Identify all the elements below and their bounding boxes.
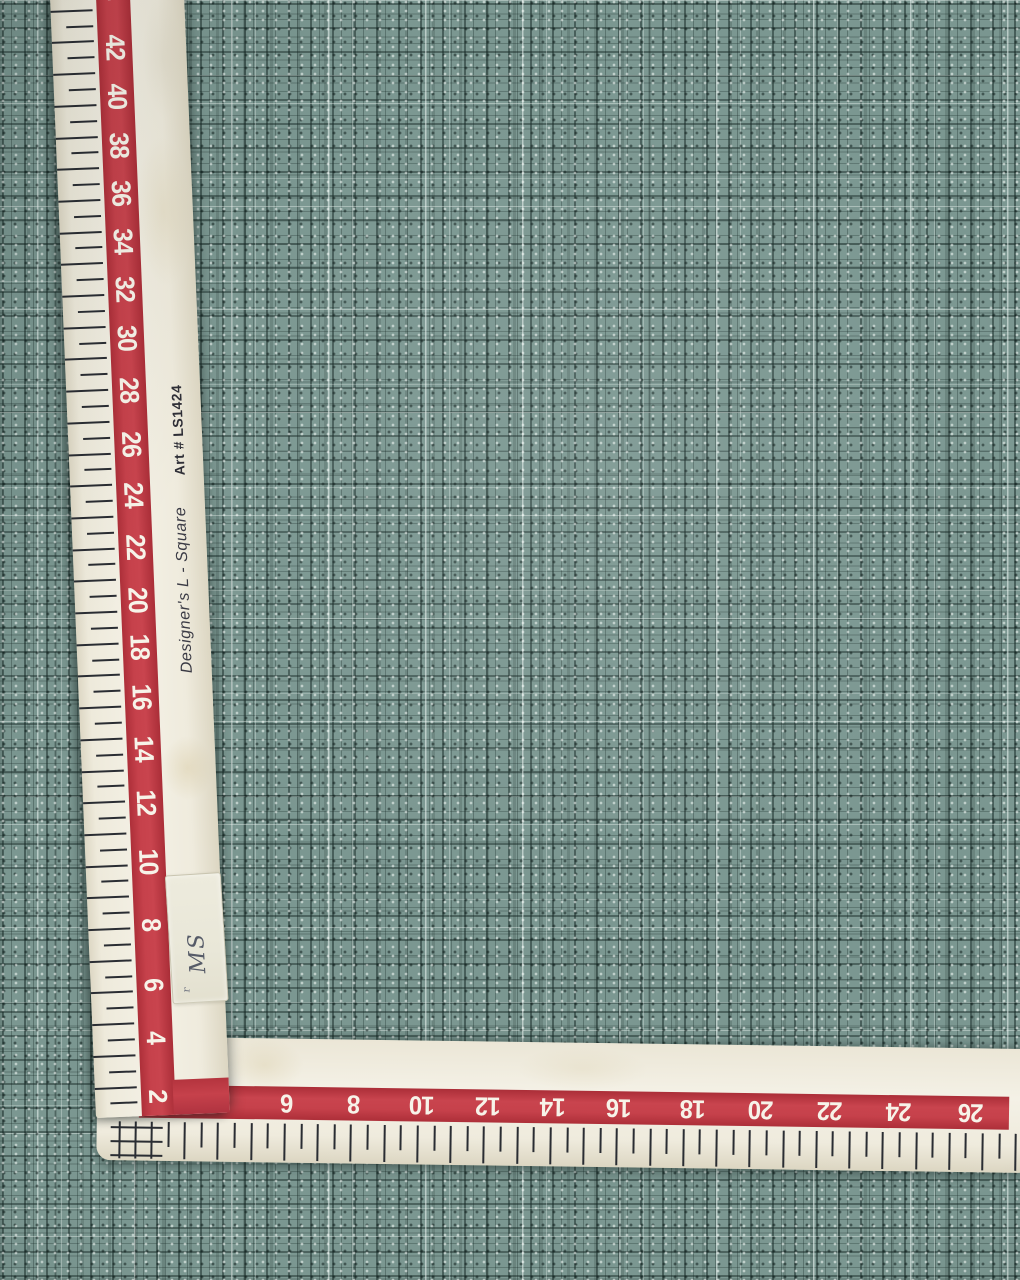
tick-mark: [84, 468, 111, 471]
tick-mark: [78, 310, 105, 313]
tick-mark: [366, 1125, 368, 1150]
tick-mark: [848, 1131, 851, 1168]
tick-mark: [566, 1128, 568, 1153]
tick-mark: [109, 1070, 136, 1073]
tick-mark: [100, 848, 127, 851]
tick-mark: [99, 817, 126, 820]
scale-number: 40: [102, 80, 131, 112]
tick-mark: [749, 1130, 752, 1167]
stain-mark: [160, 735, 215, 801]
tick-mark: [77, 642, 119, 646]
tick-mark: [666, 1129, 668, 1154]
tick-mark: [70, 484, 112, 488]
tick-mark: [316, 1124, 319, 1161]
corner-scale-number: 2: [143, 1079, 172, 1114]
tick-mark: [283, 1124, 286, 1161]
tick-mark: [75, 611, 117, 615]
tick-mark: [83, 801, 125, 805]
tick-mark: [782, 1131, 785, 1168]
art-number-text: Art # LS1424: [168, 384, 188, 475]
scale-number: 16: [127, 681, 156, 713]
tick-mark: [97, 785, 124, 788]
tick-mark: [60, 231, 102, 235]
tick-mark: [65, 357, 107, 361]
stain-mark: [225, 1038, 304, 1093]
tick-mark: [66, 389, 108, 393]
scale-number: 26: [117, 428, 146, 460]
tick-mark: [80, 373, 107, 376]
tick-mark: [449, 1126, 452, 1163]
tick-mark: [948, 1133, 951, 1170]
tick-mark: [87, 532, 114, 535]
tick-mark: [71, 516, 113, 520]
tick-mark: [383, 1125, 386, 1162]
tick-mark: [66, 25, 93, 28]
scale-number: 28: [115, 374, 144, 406]
tick-mark: [79, 341, 106, 344]
tick-mark: [998, 1134, 1000, 1159]
tick-mark: [965, 1133, 967, 1158]
scale-number: 12: [131, 786, 160, 818]
tick-mark: [416, 1125, 419, 1162]
scale-number: 10: [403, 1088, 440, 1122]
tick-mark: [52, 41, 94, 45]
tick-mark: [167, 1122, 169, 1147]
tick-mark: [67, 56, 94, 59]
corner-grid-line: [118, 1121, 121, 1158]
scale-number: 20: [123, 584, 152, 616]
tick-mark: [106, 1007, 133, 1010]
tick-mark: [88, 927, 130, 931]
tick-mark: [78, 674, 120, 678]
tick-mark: [80, 737, 122, 741]
tick-mark: [599, 1128, 601, 1153]
scale-number: 14: [129, 733, 158, 765]
tick-mark: [64, 326, 106, 330]
tick-mark: [400, 1125, 402, 1150]
scale-number: 38: [105, 129, 134, 161]
tick-mark: [110, 1102, 137, 1105]
tick-mark: [88, 563, 115, 566]
tick-mark: [483, 1126, 486, 1163]
tick-mark: [67, 421, 109, 425]
tick-mark: [832, 1131, 834, 1156]
tick-mark: [58, 199, 100, 203]
tick-mark: [73, 183, 100, 186]
tick-mark: [79, 706, 121, 710]
tick-mark: [732, 1130, 734, 1155]
scale-number: 24: [119, 479, 148, 511]
tick-mark: [74, 215, 101, 218]
stain-mark: [517, 1046, 648, 1092]
tick-mark: [62, 294, 104, 298]
tick-mark: [69, 452, 111, 456]
scale-number: 22: [811, 1094, 848, 1128]
tick-mark: [82, 405, 109, 408]
tick-mark: [533, 1127, 535, 1152]
tick-mark: [61, 262, 103, 266]
tick-mark: [300, 1124, 302, 1149]
scale-number: 20: [742, 1093, 779, 1127]
tick-mark: [57, 167, 99, 171]
tick-mark: [105, 975, 132, 978]
stain-mark: [140, 0, 185, 119]
scale-number: 36: [106, 177, 135, 209]
tick-mark: [932, 1133, 934, 1158]
tick-mark: [103, 912, 130, 915]
tick-mark: [108, 1038, 135, 1041]
tick-mark: [86, 500, 113, 503]
corner-grid-line: [134, 1122, 137, 1159]
stain-mark: [134, 135, 194, 287]
scale-number: 34: [108, 225, 137, 257]
tick-mark: [765, 1130, 767, 1155]
tick-mark: [699, 1129, 701, 1154]
tick-mark: [92, 1022, 134, 1026]
tick-mark: [95, 1086, 137, 1090]
sticker-squiggle: ʳ: [179, 985, 201, 994]
tick-mark: [200, 1122, 202, 1147]
tick-mark: [86, 864, 128, 868]
tick-mark: [77, 278, 104, 281]
scale-number: 18: [125, 631, 154, 663]
scale-number: 6: [268, 1086, 305, 1120]
tick-mark: [73, 547, 115, 551]
tick-mark: [56, 136, 98, 140]
tick-mark: [499, 1127, 501, 1152]
tick-mark: [91, 991, 133, 995]
photo-scene: 468101214161820222426 444240383634323028…: [0, 0, 1020, 1280]
tick-mark: [350, 1125, 353, 1162]
tick-mark: [632, 1128, 634, 1153]
tick-mark: [87, 896, 129, 900]
tick-mark: [90, 595, 117, 598]
tick-mark: [715, 1130, 718, 1167]
scale-number: 26: [952, 1096, 989, 1130]
scale-number: 18: [674, 1092, 711, 1126]
tick-mark: [96, 753, 123, 756]
ruler-horizontal-arm: 468101214161820222426: [96, 1036, 1020, 1173]
tick-mark: [70, 120, 97, 123]
tick-mark: [101, 880, 128, 883]
scale-number: 4: [141, 1021, 170, 1053]
scale-number: 30: [112, 322, 141, 354]
tick-mark: [250, 1123, 253, 1160]
scale-number: 16: [600, 1091, 637, 1125]
scale-number: 32: [110, 273, 139, 305]
tick-mark: [184, 1122, 187, 1159]
tick-mark: [217, 1123, 220, 1160]
masking-tape-sticker: MS ʳ: [165, 872, 229, 1004]
tick-mark: [95, 722, 122, 725]
scale-number: 12: [469, 1089, 506, 1123]
tick-mark: [898, 1132, 900, 1157]
scale-number: 22: [121, 531, 150, 563]
red-stripe-corner-bend: [172, 1078, 229, 1115]
brand-name-text: Designer's L - Square: [172, 506, 197, 673]
tick-mark: [104, 943, 131, 946]
tick-mark: [74, 579, 116, 583]
tick-mark: [92, 658, 119, 661]
tick-mark: [799, 1131, 801, 1156]
tick-mark: [865, 1132, 867, 1157]
tick-mark: [549, 1127, 552, 1164]
tick-mark: [582, 1128, 585, 1165]
tick-mark: [1014, 1134, 1017, 1171]
tick-mark: [93, 690, 120, 693]
scale-number: 14: [534, 1090, 571, 1124]
tick-mark: [90, 959, 132, 963]
tick-mark: [333, 1124, 335, 1149]
tick-mark: [981, 1133, 984, 1170]
tick-mark: [84, 832, 126, 836]
tick-mark: [616, 1128, 619, 1165]
scale-number: 8: [335, 1087, 372, 1121]
scale-number: 24: [880, 1095, 917, 1129]
tick-mark: [82, 769, 124, 773]
tick-mark: [915, 1132, 918, 1169]
tick-mark: [682, 1129, 685, 1166]
tick-mark: [234, 1123, 236, 1148]
tick-mark: [91, 627, 118, 630]
tick-mark: [54, 104, 96, 108]
tick-mark: [93, 1054, 135, 1058]
tick-mark: [83, 436, 110, 439]
tick-mark: [51, 9, 93, 13]
tick-mark: [75, 246, 102, 249]
scale-number: 6: [139, 968, 168, 1000]
tick-mark: [53, 72, 95, 76]
tick-mark: [466, 1126, 468, 1151]
scale-number: 10: [134, 845, 163, 877]
tick-mark: [71, 151, 98, 154]
tick-mark: [815, 1131, 818, 1168]
sticker-handwritten-text: MS: [184, 931, 212, 974]
tick-mark: [649, 1129, 652, 1166]
tick-mark: [881, 1132, 884, 1169]
tick-mark: [516, 1127, 519, 1164]
tick-mark: [433, 1126, 435, 1151]
scale-number: 42: [100, 31, 129, 63]
scale-number: 8: [136, 908, 165, 940]
tick-mark: [267, 1123, 269, 1148]
tick-mark: [69, 88, 96, 91]
